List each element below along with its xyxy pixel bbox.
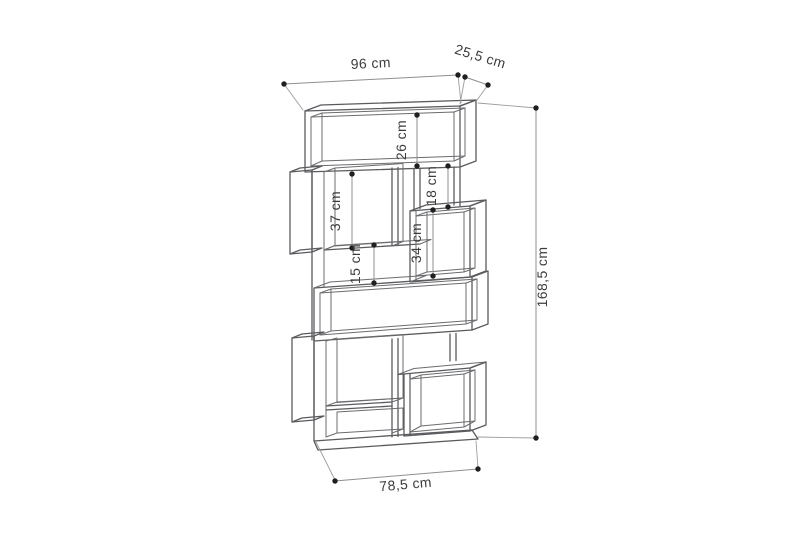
dim-label-top-compartment: 26 cm (393, 120, 409, 160)
bookshelf-drawing-canvas: 96 cm 25,5 cm 26 cm 37 cm 18 cm 34 cm 15… (0, 0, 800, 533)
dim-label-width-top: 96 cm (350, 54, 391, 72)
dim-label-depth: 25,5 cm (453, 41, 508, 72)
dim-label-middle-right-compartment: 34 cm (408, 223, 424, 263)
furniture-dimension-diagram: 96 cm 25,5 cm 26 cm 37 cm 18 cm 34 cm 15… (0, 0, 800, 533)
dim-line-width-top (284, 75, 458, 84)
bottom-right-box (398, 334, 486, 437)
bookshelf-wireframe (290, 100, 488, 450)
middle-wide-box (314, 271, 488, 341)
dim-label-total-height: 168,5 cm (534, 247, 550, 308)
dim-label-small-compartment: 18 cm (423, 166, 439, 206)
top-box (305, 100, 476, 172)
dim-line-depth (465, 77, 488, 85)
dim-label-left-gap: 15 cm (347, 244, 363, 284)
dim-label-upper-left-compartment: 37 cm (327, 191, 343, 231)
dim-label-width-bottom: 78,5 cm (379, 474, 433, 495)
